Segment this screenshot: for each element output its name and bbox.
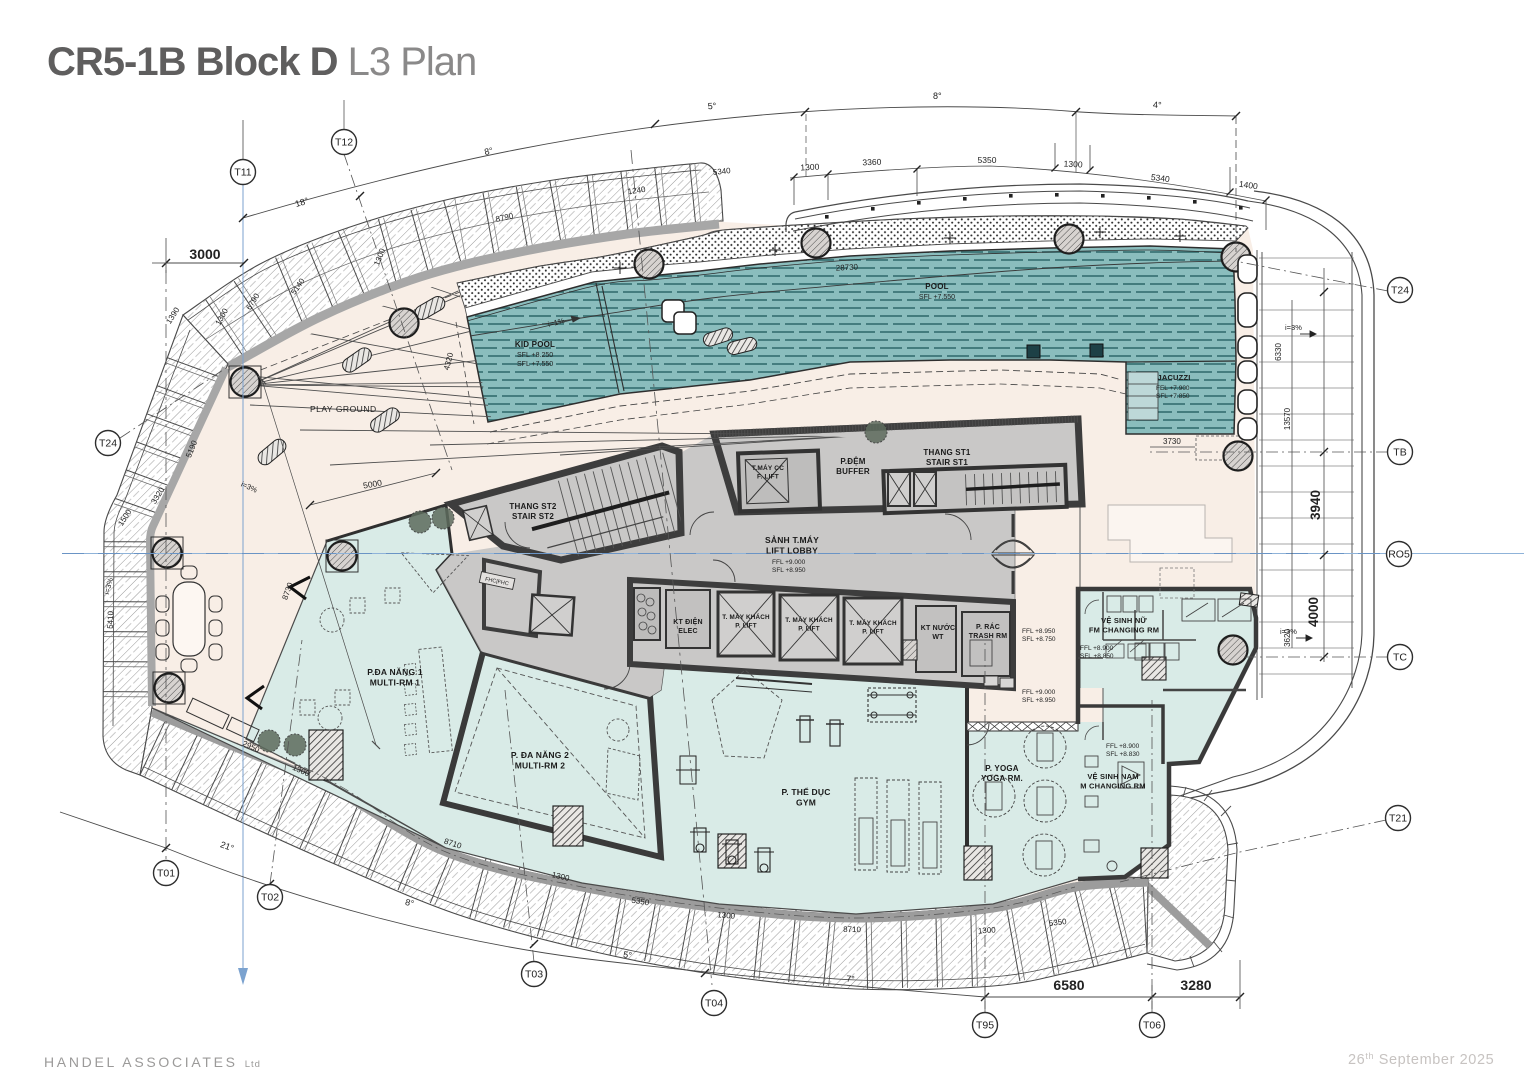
svg-text:T.MÁY CC: T.MÁY CC	[752, 463, 784, 472]
svg-text:5340: 5340	[712, 166, 731, 177]
svg-text:GYM: GYM	[796, 798, 816, 808]
svg-text:P. THỂ DỤC: P. THỂ DỤC	[781, 786, 830, 797]
svg-text:THANG ST1: THANG ST1	[923, 448, 970, 457]
svg-text:5410: 5410	[106, 610, 116, 629]
svg-text:SFL +7.550: SFL +7.550	[919, 294, 955, 301]
svg-text:FFL +8.900: FFL +8.900	[1080, 645, 1114, 652]
svg-text:VỆ SINH NAM: VỆ SINH NAM	[1087, 772, 1138, 781]
svg-text:3360: 3360	[862, 157, 882, 168]
svg-text:6330: 6330	[1274, 343, 1283, 361]
svg-text:T02: T02	[261, 892, 279, 904]
svg-text:FM CHANGING RM: FM CHANGING RM	[1089, 626, 1159, 635]
svg-text:5°: 5°	[707, 101, 717, 111]
svg-text:KT NƯỚC: KT NƯỚC	[921, 623, 956, 632]
svg-text:1300: 1300	[717, 910, 736, 921]
svg-text:KT ĐIỆN: KT ĐIỆN	[673, 617, 702, 626]
svg-text:VỆ SINH NỮ: VỆ SINH NỮ	[1101, 616, 1147, 625]
svg-text:5350: 5350	[978, 155, 997, 165]
svg-text:3280: 3280	[1180, 977, 1211, 993]
svg-text:THANG ST2: THANG ST2	[509, 502, 556, 511]
svg-text:P. YOGA: P. YOGA	[985, 764, 1019, 773]
svg-text:T24: T24	[99, 438, 117, 450]
svg-text:T04: T04	[705, 998, 723, 1010]
svg-text:T21: T21	[1389, 813, 1407, 825]
svg-text:YOGA RM.: YOGA RM.	[981, 774, 1023, 783]
svg-text:6580: 6580	[1053, 977, 1084, 993]
svg-text:LIFT LOBBY: LIFT LOBBY	[766, 546, 818, 556]
svg-text:1300: 1300	[978, 925, 997, 935]
svg-text:7°: 7°	[846, 974, 856, 985]
svg-text:SFL +8.950: SFL +8.950	[772, 567, 806, 574]
svg-text:TRASH RM: TRASH RM	[969, 633, 1008, 640]
svg-text:3940: 3940	[1308, 490, 1323, 520]
svg-text:3000: 3000	[189, 246, 220, 262]
svg-text:1300: 1300	[1063, 159, 1083, 170]
svg-text:JACUZZI: JACUZZI	[1157, 373, 1190, 382]
svg-text:T06: T06	[1143, 1020, 1161, 1032]
svg-text:3730: 3730	[1163, 437, 1181, 446]
svg-text:P. LIFT: P. LIFT	[798, 625, 820, 632]
svg-text:28730: 28730	[836, 262, 859, 272]
svg-text:4°: 4°	[1153, 100, 1163, 111]
svg-text:RO5: RO5	[1388, 549, 1410, 561]
svg-text:T. MÁY KHÁCH: T. MÁY KHÁCH	[785, 615, 833, 624]
svg-text:T12: T12	[335, 137, 353, 149]
svg-text:4000: 4000	[1306, 597, 1321, 627]
svg-text:13570: 13570	[1283, 407, 1292, 430]
svg-text:1300: 1300	[800, 162, 820, 173]
svg-text:T03: T03	[525, 969, 543, 981]
svg-text:WT: WT	[932, 634, 944, 641]
svg-text:SFL +8.250: SFL +8.250	[517, 352, 553, 359]
svg-text:STAIR ST1: STAIR ST1	[926, 458, 968, 467]
svg-text:P. LIFT: P. LIFT	[735, 622, 757, 629]
svg-text:FFL +8.950: FFL +8.950	[1022, 628, 1056, 635]
svg-text:i=3%: i=3%	[1285, 323, 1302, 332]
svg-text:T95: T95	[976, 1020, 994, 1032]
svg-text:T. MÁY KHÁCH: T. MÁY KHÁCH	[849, 618, 897, 627]
svg-text:TB: TB	[1393, 447, 1406, 459]
svg-text:P. ĐA NĂNG 2: P. ĐA NĂNG 2	[511, 750, 569, 760]
svg-text:MULTI-RM 1: MULTI-RM 1	[370, 678, 421, 688]
svg-text:i=3%: i=3%	[1280, 627, 1297, 636]
svg-text:POOL: POOL	[925, 282, 948, 291]
svg-text:SFL +8.830: SFL +8.830	[1106, 751, 1140, 758]
svg-text:FEL +7.900: FEL +7.900	[1156, 385, 1190, 392]
svg-text:8°: 8°	[933, 91, 942, 101]
svg-text:8710: 8710	[843, 925, 862, 934]
svg-text:SẢNH T.MÁY: SẢNH T.MÁY	[765, 534, 819, 545]
svg-text:M CHANGING RM: M CHANGING RM	[1080, 782, 1146, 791]
svg-text:SFL +8.950: SFL +8.950	[1022, 697, 1056, 704]
svg-text:SFL +8.750: SFL +8.750	[1022, 636, 1056, 643]
svg-text:BUFFER: BUFFER	[836, 467, 870, 476]
svg-text:F. LIFT: F. LIFT	[757, 474, 779, 481]
svg-text:T. MÁY KHÁCH: T. MÁY KHÁCH	[722, 612, 770, 621]
svg-text:ELEC: ELEC	[678, 628, 697, 635]
svg-text:P. RÁC: P. RÁC	[976, 622, 1000, 631]
svg-text:SFL +7.550: SFL +7.550	[517, 361, 553, 368]
svg-text:HANDEL ASSOCIATESLtd: HANDEL ASSOCIATESLtd	[44, 1054, 261, 1070]
svg-text:KID POOL: KID POOL	[515, 340, 555, 349]
svg-text:P.ĐA NĂNG 1: P.ĐA NĂNG 1	[367, 667, 423, 677]
svg-text:STAIR ST2: STAIR ST2	[512, 512, 554, 521]
svg-text:T11: T11	[234, 167, 251, 179]
svg-text:P.ĐỆM: P.ĐỆM	[840, 457, 865, 466]
svg-text:FFL +9.000: FFL +9.000	[1022, 689, 1056, 696]
svg-text:FFL +8.900: FFL +8.900	[1106, 743, 1140, 750]
svg-text:PLAY GROUND: PLAY GROUND	[310, 404, 377, 414]
svg-text:T01: T01	[157, 868, 175, 880]
svg-text:TC: TC	[1393, 652, 1407, 664]
svg-text:SFL +8.850: SFL +8.850	[1080, 653, 1114, 660]
svg-text:T24: T24	[1391, 285, 1409, 297]
svg-text:FFL +9.000: FFL +9.000	[772, 559, 806, 566]
svg-text:CR5-1B Block D L3 Plan: CR5-1B Block D L3 Plan	[47, 40, 476, 84]
svg-text:P. LIFT: P. LIFT	[862, 628, 884, 635]
svg-text:SFL +7.850: SFL +7.850	[1156, 393, 1190, 400]
svg-text:MULTI-RM 2: MULTI-RM 2	[515, 761, 566, 771]
